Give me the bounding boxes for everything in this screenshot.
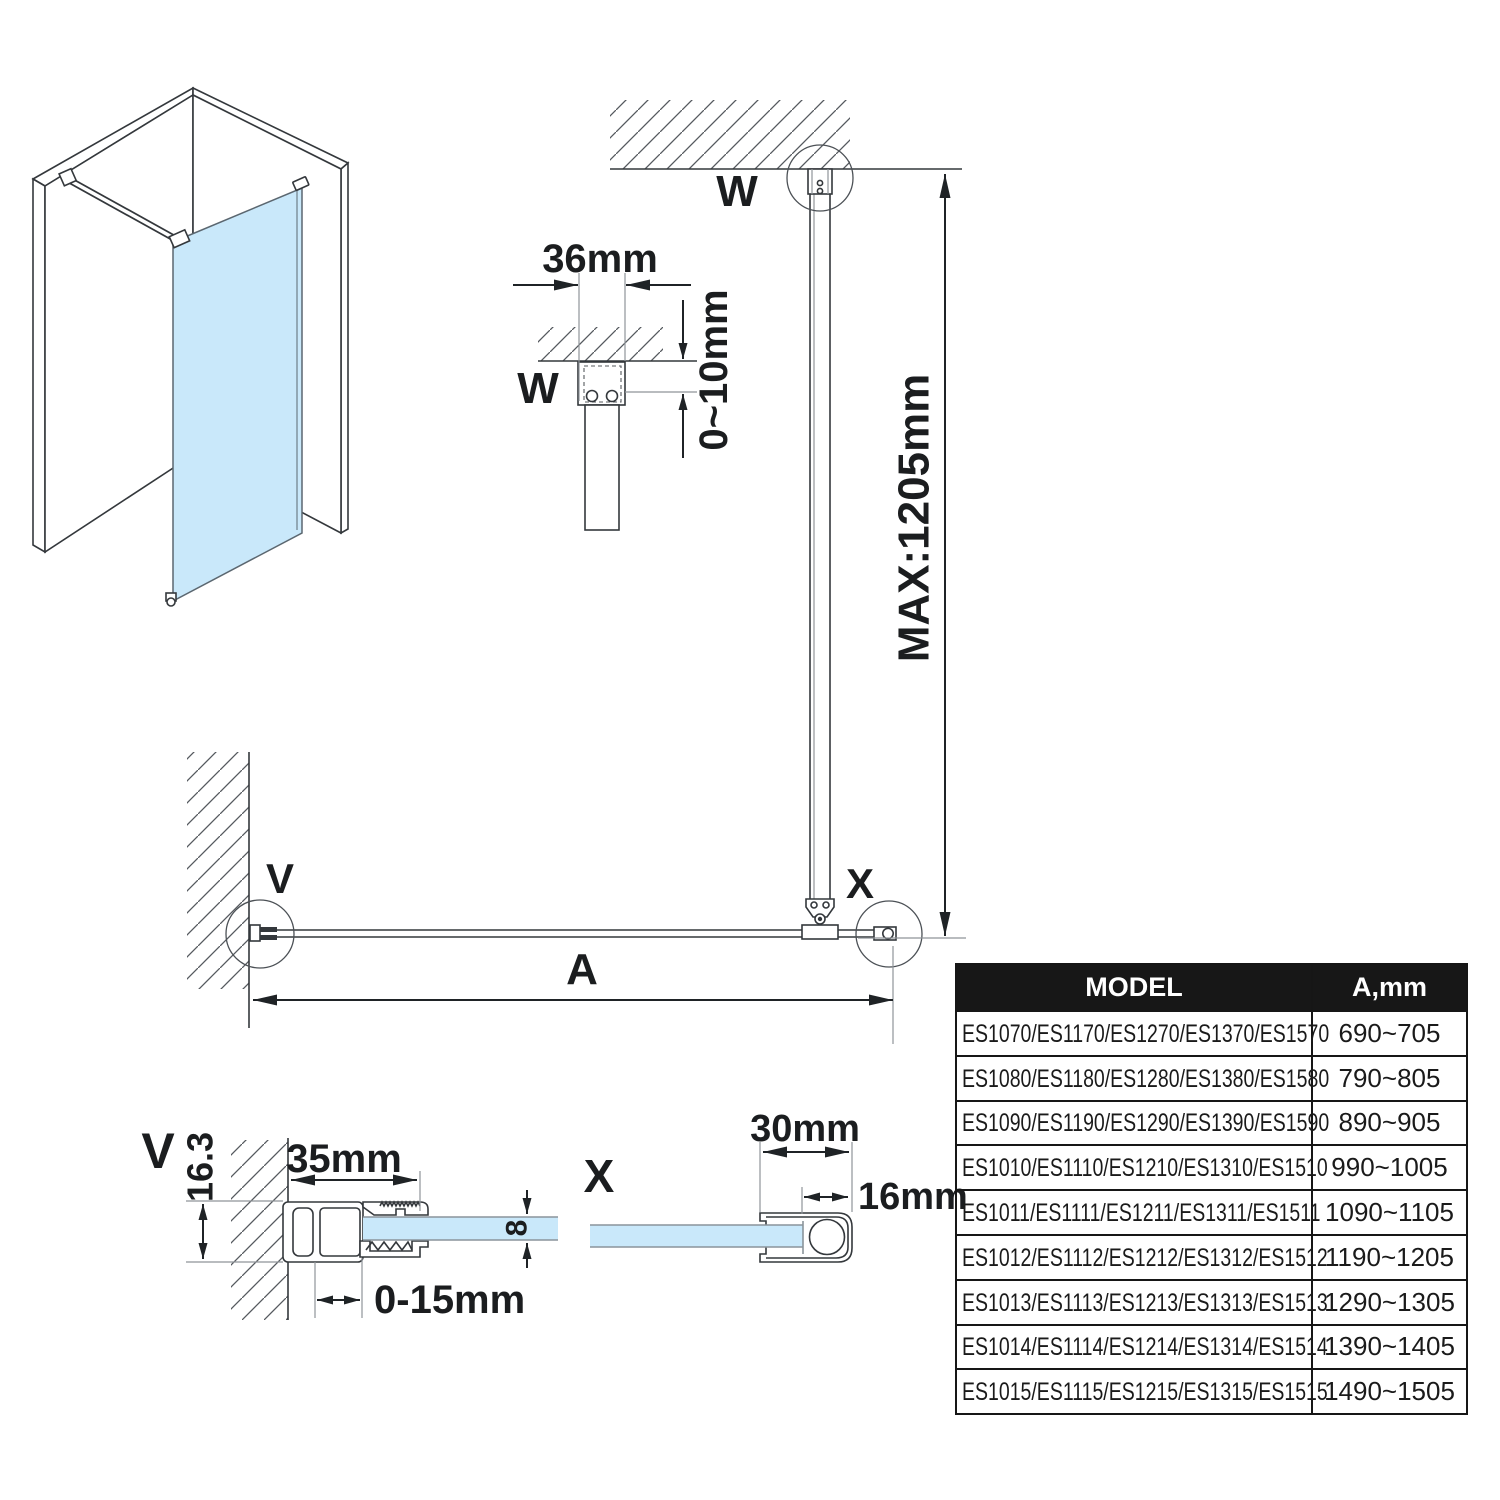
table-row: ES1090/ES1190/ES1290/ES1390/ES1590 890~9…: [956, 1101, 1467, 1146]
ceiling-hatch: [610, 100, 850, 169]
profile-adjust-label: 0-15mm: [374, 1278, 525, 1322]
support-profile-width-label: 30mm: [750, 1108, 860, 1150]
a-cell: 1190~1205: [1312, 1235, 1467, 1280]
a-cell: 1290~1305: [1312, 1280, 1467, 1325]
detail-label-w: W: [716, 167, 758, 216]
model-cell: ES1012/ES1112/ES1212/ES1312/ES1512: [956, 1235, 1312, 1280]
bracket-width-label: 36mm: [542, 237, 658, 281]
table-row: ES1015/ES1115/ES1215/ES1315/ES1515 1490~…: [956, 1369, 1467, 1414]
glass-panel: [173, 188, 302, 601]
table-row: ES1080/ES1180/ES1280/ES1380/ES1580 790~8…: [956, 1056, 1467, 1101]
a-cell: 1390~1405: [1312, 1325, 1467, 1370]
a-cell: 990~1005: [1312, 1145, 1467, 1190]
detail-v-wall-hatch: [231, 1140, 288, 1320]
a-cell: 1490~1505: [1312, 1369, 1467, 1414]
detail-label-v: V: [266, 855, 294, 902]
right-wall-front-edge: [341, 163, 348, 533]
table-row: ES1014/ES1114/ES1214/ES1314/ES1514 1390~…: [956, 1325, 1467, 1370]
table-row: ES1070/ES1170/ES1270/ES1370/ES1570 690~7…: [956, 1011, 1467, 1056]
model-cell: ES1015/ES1115/ES1215/ES1315/ES1515: [956, 1369, 1312, 1414]
model-cell: ES1014/ES1114/ES1214/ES1314/ES1514: [956, 1325, 1312, 1370]
model-cell: ES1010/ES1110/ES1210/ES1310/ES1510: [956, 1145, 1312, 1190]
model-column-header: MODEL: [956, 964, 1312, 1011]
profile-width-label: 35mm: [286, 1137, 402, 1181]
width-a-label: A: [566, 945, 598, 994]
model-size-table: MODEL A,mm ES1070/ES1170/ES1270/ES1370/E…: [955, 963, 1466, 1415]
wall-hatch: [187, 752, 249, 989]
max-height-label: MAX:1205mm: [890, 374, 939, 663]
model-cell: ES1090/ES1190/ES1290/ES1390/ES1590: [956, 1101, 1312, 1146]
table-header-row: MODEL A,mm: [956, 964, 1467, 1011]
glass-thickness-label: 8: [501, 1220, 534, 1237]
technical-drawing-page: W V X: [0, 0, 1500, 1500]
detail-label-x2: X: [584, 1150, 615, 1202]
detail-v-view: V 16.3: [141, 1123, 558, 1322]
support-profile-depth-dim: [802, 1187, 848, 1214]
support-profile-width-dim: [760, 1142, 852, 1212]
ceiling-gap-label: 0~10mm: [692, 289, 736, 450]
support-profile-depth-label: 16mm: [858, 1176, 968, 1218]
glass-plan-lines: [255, 930, 874, 937]
table-row: ES1012/ES1112/ES1212/ES1312/ES1512 1190~…: [956, 1235, 1467, 1280]
a-cell: 690~705: [1312, 1011, 1467, 1056]
a-cell: 890~905: [1312, 1101, 1467, 1146]
bar-glass-bracket: [802, 899, 838, 939]
detail-w-gap-dim: [625, 300, 697, 458]
profile-adjust-dim: [315, 1258, 362, 1318]
detail-label-w2: W: [517, 364, 559, 413]
a-cell: 1090~1105: [1312, 1190, 1467, 1235]
a-column-header: A,mm: [1312, 964, 1467, 1011]
detail-w-view: 36mm 0~10mm W: [513, 237, 736, 530]
wall-profile-clamp: [250, 925, 277, 941]
table-row: ES1011/ES1111/ES1211/ES1311/ES1511 1090~…: [956, 1190, 1467, 1235]
a-cell: 790~805: [1312, 1056, 1467, 1101]
detail-label-x: X: [846, 860, 874, 907]
floor-foot-cap: [167, 598, 175, 606]
detail-w-ceiling-hatch: [538, 327, 663, 361]
model-cell: ES1070/ES1170/ES1270/ES1370/ES1570: [956, 1011, 1312, 1056]
detail-x-view: X 30mm 16mm: [584, 1108, 968, 1262]
model-cell: ES1080/ES1180/ES1280/ES1380/ES1580: [956, 1056, 1312, 1101]
support-bar-socket: [810, 1220, 845, 1255]
profile-depth-label: 16.3: [180, 1132, 221, 1202]
model-cell: ES1013/ES1113/ES1213/ES1313/ES1513: [956, 1280, 1312, 1325]
model-cell: ES1011/ES1111/ES1211/ES1311/ES1511: [956, 1190, 1312, 1235]
table-row: ES1010/ES1110/ES1210/ES1310/ES1510 990~1…: [956, 1145, 1467, 1190]
left-wall-front-edge: [33, 179, 45, 552]
detail-label-v2: V: [141, 1123, 175, 1179]
vertical-support-bar: [810, 194, 830, 899]
isometric-view: [33, 88, 348, 606]
ceiling-bracket: [808, 169, 832, 194]
table-row: ES1013/ES1113/ES1213/ES1313/ES1513 1290~…: [956, 1280, 1467, 1325]
detail-w-bracket: [578, 362, 625, 530]
